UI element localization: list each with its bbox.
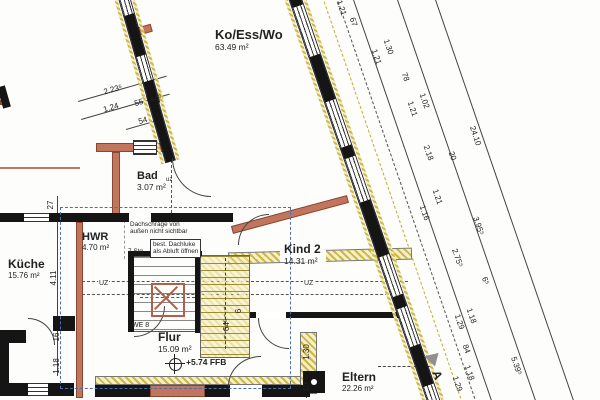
room-area: 14.31 m² [284,256,321,266]
dimension-label: 1.29 [451,375,464,392]
hatch-note-line2: als Abluft öffnen [153,248,198,255]
dimension-label: 1.16 [418,204,431,221]
door-arc-bad [172,158,211,197]
wall-left-edge [0,343,9,388]
level-marker-icon [169,358,182,371]
dimension-label: 3.95⁵ [471,216,485,236]
stair-count-note: 7 Stg [128,248,143,255]
room-name: Flur [158,331,192,344]
dimension-label: 1.30 [382,38,395,55]
dimension-label: 1.21 [431,188,444,205]
room-label-hwr: HWR 4.70 m² [82,231,109,253]
wall-edge-red-line [0,167,80,169]
dimension-label: 10 [303,383,311,392]
room-area: 15.76 m² [8,271,45,281]
dimension-label: 64⁵ [223,319,231,331]
dimension-label: 1.24 [102,102,119,114]
dimension-label: 67 [348,16,358,27]
unit-label: WE 8 [132,322,149,329]
room-name: Bad [137,170,166,182]
room-label-flur: Flur 15.09 m² [158,331,192,354]
room-name: HWR [82,231,109,243]
dimension-label: 1.18 [53,358,61,374]
room-name: Eltern [342,371,376,384]
dimension-label: 1.29 [453,313,466,330]
dimension-label: 1.21 [406,100,419,117]
room-name: Küche [8,258,45,271]
column-dot [311,379,317,385]
roof-hatch-note: best. Dachluke als Abluft öffnen [150,239,201,258]
beam-label-small: uz [166,177,172,183]
door-arc-entry [28,318,55,345]
roof-slope-note: Dachschräge von außen nicht sichtbar [130,221,188,236]
wall-left-upper [118,0,160,106]
wall-edge-diagonal-stub [0,85,11,108]
dimension-label: 1.02 [418,92,431,109]
dimension-label: 2.75⁵ [450,248,464,268]
room-label-kind2: Kind 2 14.31 m² [284,243,321,266]
dimension-label: 84 [461,343,471,354]
dimension-label: 1.21 [370,48,383,65]
room-name: Kind 2 [284,243,321,256]
level-value: +5.74 FFB [186,357,226,367]
room-area: 22.26 m² [342,384,376,394]
floor-plan-canvas: Ko/Ess/Wo 63.49 m² Bad 3.07 m² HWR 4.70 … [0,0,600,400]
dimension-label: 4.11 [50,271,58,286]
dimension-label: 54 [138,116,149,126]
dimension-label: 16 [53,333,61,342]
room-area: 4.70 m² [82,243,109,253]
hatch-note-line1: best. Dachluke [153,241,198,248]
room-label-kueche: Küche 15.76 m² [8,258,45,281]
room-label-bad: Bad 3.07 m² [137,170,166,192]
wall-bottom-1 [0,383,28,396]
room-label-eltern: Eltern 22.26 m² [342,371,376,394]
beam-label-left: UZ [98,280,109,287]
dimension-label: 1.18 [463,364,476,381]
dimension-label: 2.23⁵ [103,84,123,97]
dimension-label: 2.18 [422,144,435,161]
wall-stub-left-1 [0,330,26,343]
dimension-label: 6 [235,309,243,313]
dimension-line-kueche [57,196,58,376]
room-area: 63.49 m² [215,42,283,52]
dimension-label: 1.30 [303,344,311,360]
roof-note-line1: Dachschräge von [130,221,188,228]
room-area: 15.09 m² [158,344,192,354]
window-kueche-top [24,213,49,222]
room-label-ko-ess-wo: Ko/Ess/Wo 63.49 m² [215,28,283,52]
dimension-label: 1.18 [465,307,478,324]
dimension-label: 20 [447,150,457,161]
roof-note-line2: außen nicht sichtbar [130,228,188,235]
room-name: Ko/Ess/Wo [215,28,283,42]
dimension-label: 55 [134,98,145,108]
window-bad [133,140,157,155]
dimension-label: 1.21 [335,0,348,17]
section-marker-icon [422,350,438,367]
dimension-label: 27 [47,201,55,210]
room-area: 3.07 m² [137,182,166,192]
beam-label-right: UZ [303,280,314,287]
dimension-label: 78 [400,71,410,82]
dimension-label: 6⁵ [480,276,490,286]
window-bottom [28,383,48,396]
